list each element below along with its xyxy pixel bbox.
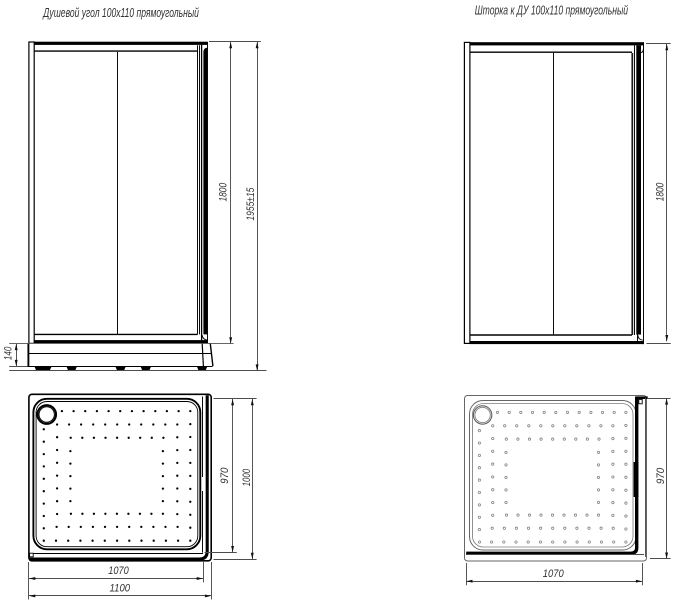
svg-text:970: 970	[219, 467, 231, 483]
svg-text:Душевой угол 100x110 прямоугол: Душевой угол 100x110 прямоугольный	[42, 5, 199, 20]
svg-text:Шторка к ДУ 100x110 прямоуголь: Шторка к ДУ 100x110 прямоугольный	[475, 3, 628, 18]
svg-text:140: 140	[3, 347, 15, 360]
svg-text:1070: 1070	[543, 568, 564, 580]
svg-text:1070: 1070	[108, 565, 129, 577]
svg-text:1955±15: 1955±15	[245, 188, 257, 221]
svg-text:1100: 1100	[110, 583, 131, 595]
svg-text:1000: 1000	[241, 469, 253, 487]
svg-text:970: 970	[655, 468, 667, 484]
svg-text:1800: 1800	[217, 183, 229, 202]
svg-text:1800: 1800	[655, 183, 667, 202]
